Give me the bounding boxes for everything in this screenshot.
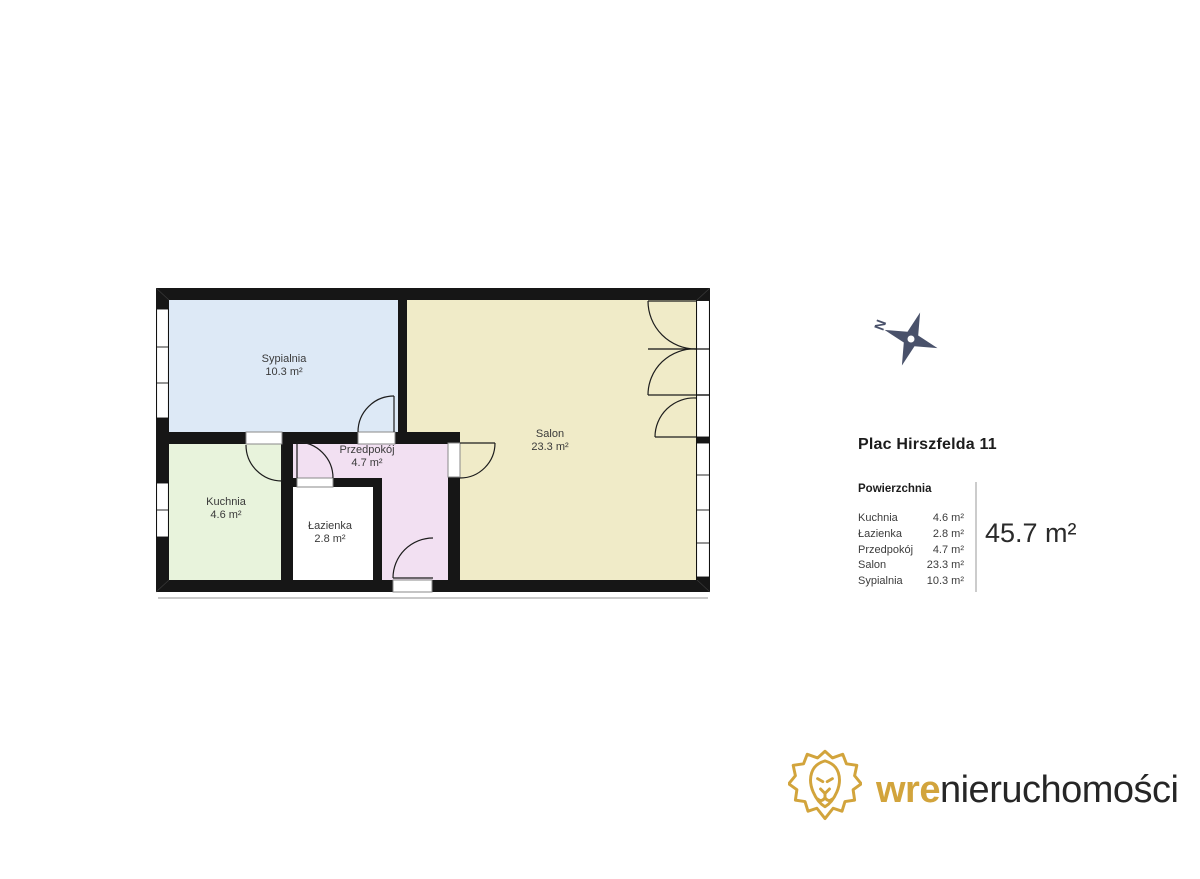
address-title: Plac Hirszfelda 11 [858, 436, 997, 454]
compass-hub [906, 334, 916, 344]
table-row: Przedpokój 4.7 m² [858, 543, 964, 559]
row-value: 23.3 m² [927, 558, 964, 574]
room-label-przedpokoj: Przedpokój 4.7 m² [339, 444, 394, 470]
room-label-salon: Salon 23.3 m² [531, 428, 568, 454]
logo-text-rest: nieruchomości [940, 769, 1179, 811]
room-name: Salon [536, 428, 564, 440]
table-total-divider [975, 482, 977, 592]
room-label-sypialnia: Sypialnia 10.3 m² [262, 353, 307, 379]
room-name: Sypialnia [262, 353, 307, 365]
table-row: Łazienka 2.8 m² [858, 527, 964, 543]
table-row: Sypialnia 10.3 m² [858, 574, 964, 590]
row-label: Salon [858, 558, 886, 574]
row-label: Kuchnia [858, 511, 898, 527]
room-area: 10.3 m² [265, 366, 302, 378]
logo-text: wrenieruchomości [876, 769, 1178, 812]
row-label: Przedpokój [858, 543, 913, 559]
door-opening-salon [448, 443, 460, 477]
room-area: 4.7 m² [351, 457, 382, 469]
room-name: Kuchnia [206, 496, 246, 508]
row-value: 4.6 m² [933, 511, 964, 527]
floorplan-page: Sypialnia 10.3 m² Salon 23.3 m² Kuchnia … [0, 0, 1200, 879]
compass-rose-icon: N [868, 303, 954, 375]
logo-text-bold: wre [876, 769, 940, 811]
room-label-kuchnia: Kuchnia 4.6 m² [206, 496, 246, 522]
table-row: Kuchnia 4.6 m² [858, 511, 964, 527]
room-name: Łazienka [308, 520, 352, 532]
room-name: Przedpokój [339, 444, 394, 456]
row-label: Łazienka [858, 527, 902, 543]
room-area: 23.3 m² [531, 441, 568, 453]
row-value: 4.7 m² [933, 543, 964, 559]
lion-logo-icon [788, 749, 862, 829]
window-sypialnia [157, 309, 169, 418]
balcony-door-opening [697, 301, 710, 438]
door-opening-kuchnia [246, 432, 282, 444]
row-value: 2.8 m² [933, 527, 964, 543]
room-area: 2.8 m² [314, 533, 345, 545]
compass-north-label: N [871, 317, 889, 332]
door-opening-lazienka [297, 478, 333, 487]
row-label: Sypialnia [858, 574, 903, 590]
area-table: Kuchnia 4.6 m² Łazienka 2.8 m² Przedpokó… [858, 511, 964, 590]
room-label-lazienka: Łazienka 2.8 m² [308, 520, 352, 546]
agency-logo: wrenieruchomości [788, 749, 1178, 831]
table-header: Powierzchnia [858, 483, 932, 495]
room-area: 4.6 m² [210, 509, 241, 521]
row-value: 10.3 m² [927, 574, 964, 590]
table-row: Salon 23.3 m² [858, 558, 964, 574]
floor-plan [156, 288, 710, 602]
door-opening-entrance [393, 580, 432, 592]
total-area-value: 45.7 m² [985, 518, 1077, 549]
door-opening-sypialnia [358, 432, 395, 444]
